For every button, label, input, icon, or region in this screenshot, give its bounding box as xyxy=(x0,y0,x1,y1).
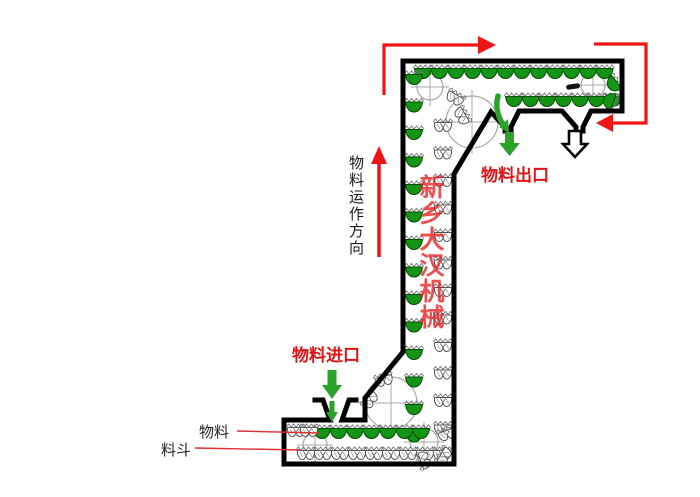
material-inlet-label: 物料进口 xyxy=(292,341,360,366)
outlet-arrow-white xyxy=(563,131,587,157)
empty-bucket xyxy=(347,447,367,460)
empty-bucket xyxy=(364,447,384,460)
empty-bucket xyxy=(296,447,316,460)
sensor-pill xyxy=(566,83,581,90)
empty-bucket xyxy=(433,147,453,160)
material-label: 物料 xyxy=(199,421,229,442)
empty-bucket xyxy=(381,447,401,460)
empty-bucket xyxy=(452,104,473,128)
full-bucket xyxy=(404,346,424,360)
empty-bucket xyxy=(433,367,453,380)
full-bucket xyxy=(404,99,424,113)
bucket-hopper-label: 料斗 xyxy=(161,439,191,460)
empty-bucket xyxy=(330,447,350,460)
empty-bucket xyxy=(398,447,418,460)
watermark-text: 新乡大汉机械 xyxy=(412,174,448,330)
empty-bucket xyxy=(313,447,333,460)
empty-bucket xyxy=(433,394,453,407)
material-outlet-label: 物料出口 xyxy=(481,161,549,186)
flow-arrow-vertical-up xyxy=(371,146,387,257)
full-bucket xyxy=(404,154,424,168)
full-bucket xyxy=(404,126,424,140)
flow-direction-label: 物料运作方向 xyxy=(345,155,366,257)
empty-bucket xyxy=(433,119,453,132)
full-bucket xyxy=(404,374,424,388)
bucket-elevator-diagram-page: 物料运作方向 新乡大汉机械 物料出口 物料进口 物料 料斗 xyxy=(0,0,700,497)
inlet-arrow xyxy=(322,370,342,422)
empty-bucket xyxy=(433,339,453,352)
